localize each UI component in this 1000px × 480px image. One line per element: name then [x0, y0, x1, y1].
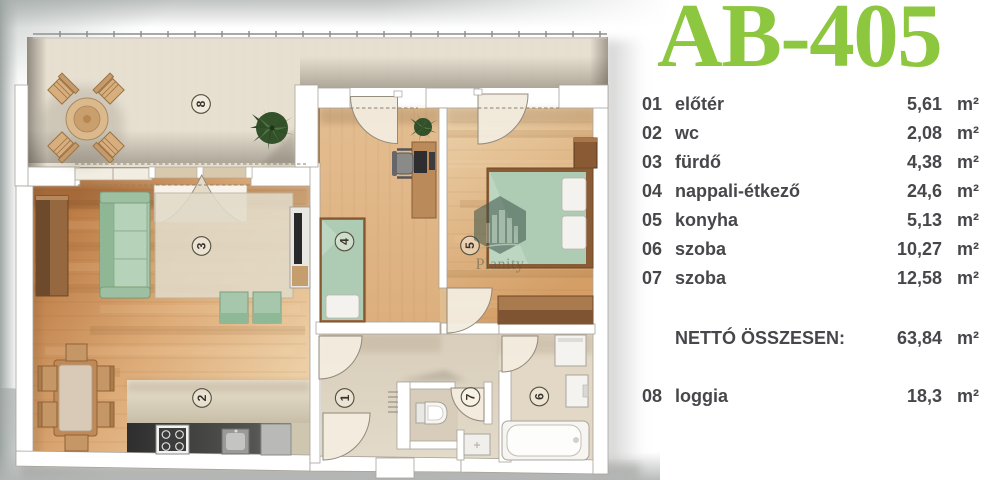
- svg-text:12,58: 12,58: [897, 268, 942, 288]
- svg-text:szoba: szoba: [675, 239, 727, 259]
- svg-text:m²: m²: [957, 328, 979, 348]
- svg-text:05: 05: [642, 210, 662, 230]
- svg-text:2,08: 2,08: [907, 123, 942, 143]
- svg-text:nappali-étkező: nappali-étkező: [675, 181, 800, 201]
- svg-text:2: 2: [195, 394, 209, 401]
- svg-text:08: 08: [642, 386, 662, 406]
- svg-text:m²: m²: [957, 386, 979, 406]
- svg-text:5: 5: [463, 242, 477, 249]
- svg-text:NETTÓ ÖSSZESEN:: NETTÓ ÖSSZESEN:: [675, 327, 845, 348]
- svg-text:AB-405: AB-405: [657, 0, 941, 86]
- svg-text:m²: m²: [957, 123, 979, 143]
- svg-text:63,84: 63,84: [897, 328, 942, 348]
- svg-text:m²: m²: [957, 94, 979, 114]
- svg-text:4: 4: [338, 238, 352, 245]
- svg-text:Planity: Planity: [476, 256, 525, 273]
- svg-text:fürdő: fürdő: [675, 152, 721, 172]
- svg-text:01: 01: [642, 94, 662, 114]
- svg-text:m²: m²: [957, 210, 979, 230]
- svg-text:m²: m²: [957, 152, 979, 172]
- svg-text:loggia: loggia: [675, 386, 729, 406]
- svg-text:07: 07: [642, 268, 662, 288]
- svg-text:18,3: 18,3: [907, 386, 942, 406]
- svg-text:7: 7: [464, 393, 478, 400]
- svg-text:konyha: konyha: [675, 210, 739, 230]
- svg-text:02: 02: [642, 123, 662, 143]
- svg-text:m²: m²: [957, 239, 979, 259]
- svg-text:3: 3: [195, 242, 209, 249]
- svg-text:04: 04: [642, 181, 662, 201]
- svg-text:6: 6: [533, 393, 547, 400]
- svg-text:5,61: 5,61: [907, 94, 942, 114]
- svg-text:5,13: 5,13: [907, 210, 942, 230]
- svg-text:m²: m²: [957, 268, 979, 288]
- svg-text:wc: wc: [674, 123, 699, 143]
- svg-text:előtér: előtér: [675, 94, 724, 114]
- svg-text:24,6: 24,6: [907, 181, 942, 201]
- svg-text:03: 03: [642, 152, 662, 172]
- svg-text:8: 8: [194, 100, 208, 107]
- svg-text:10,27: 10,27: [897, 239, 942, 259]
- svg-text:szoba: szoba: [675, 268, 727, 288]
- svg-text:4,38: 4,38: [907, 152, 942, 172]
- svg-text:06: 06: [642, 239, 662, 259]
- svg-text:1: 1: [338, 394, 352, 401]
- svg-text:m²: m²: [957, 181, 979, 201]
